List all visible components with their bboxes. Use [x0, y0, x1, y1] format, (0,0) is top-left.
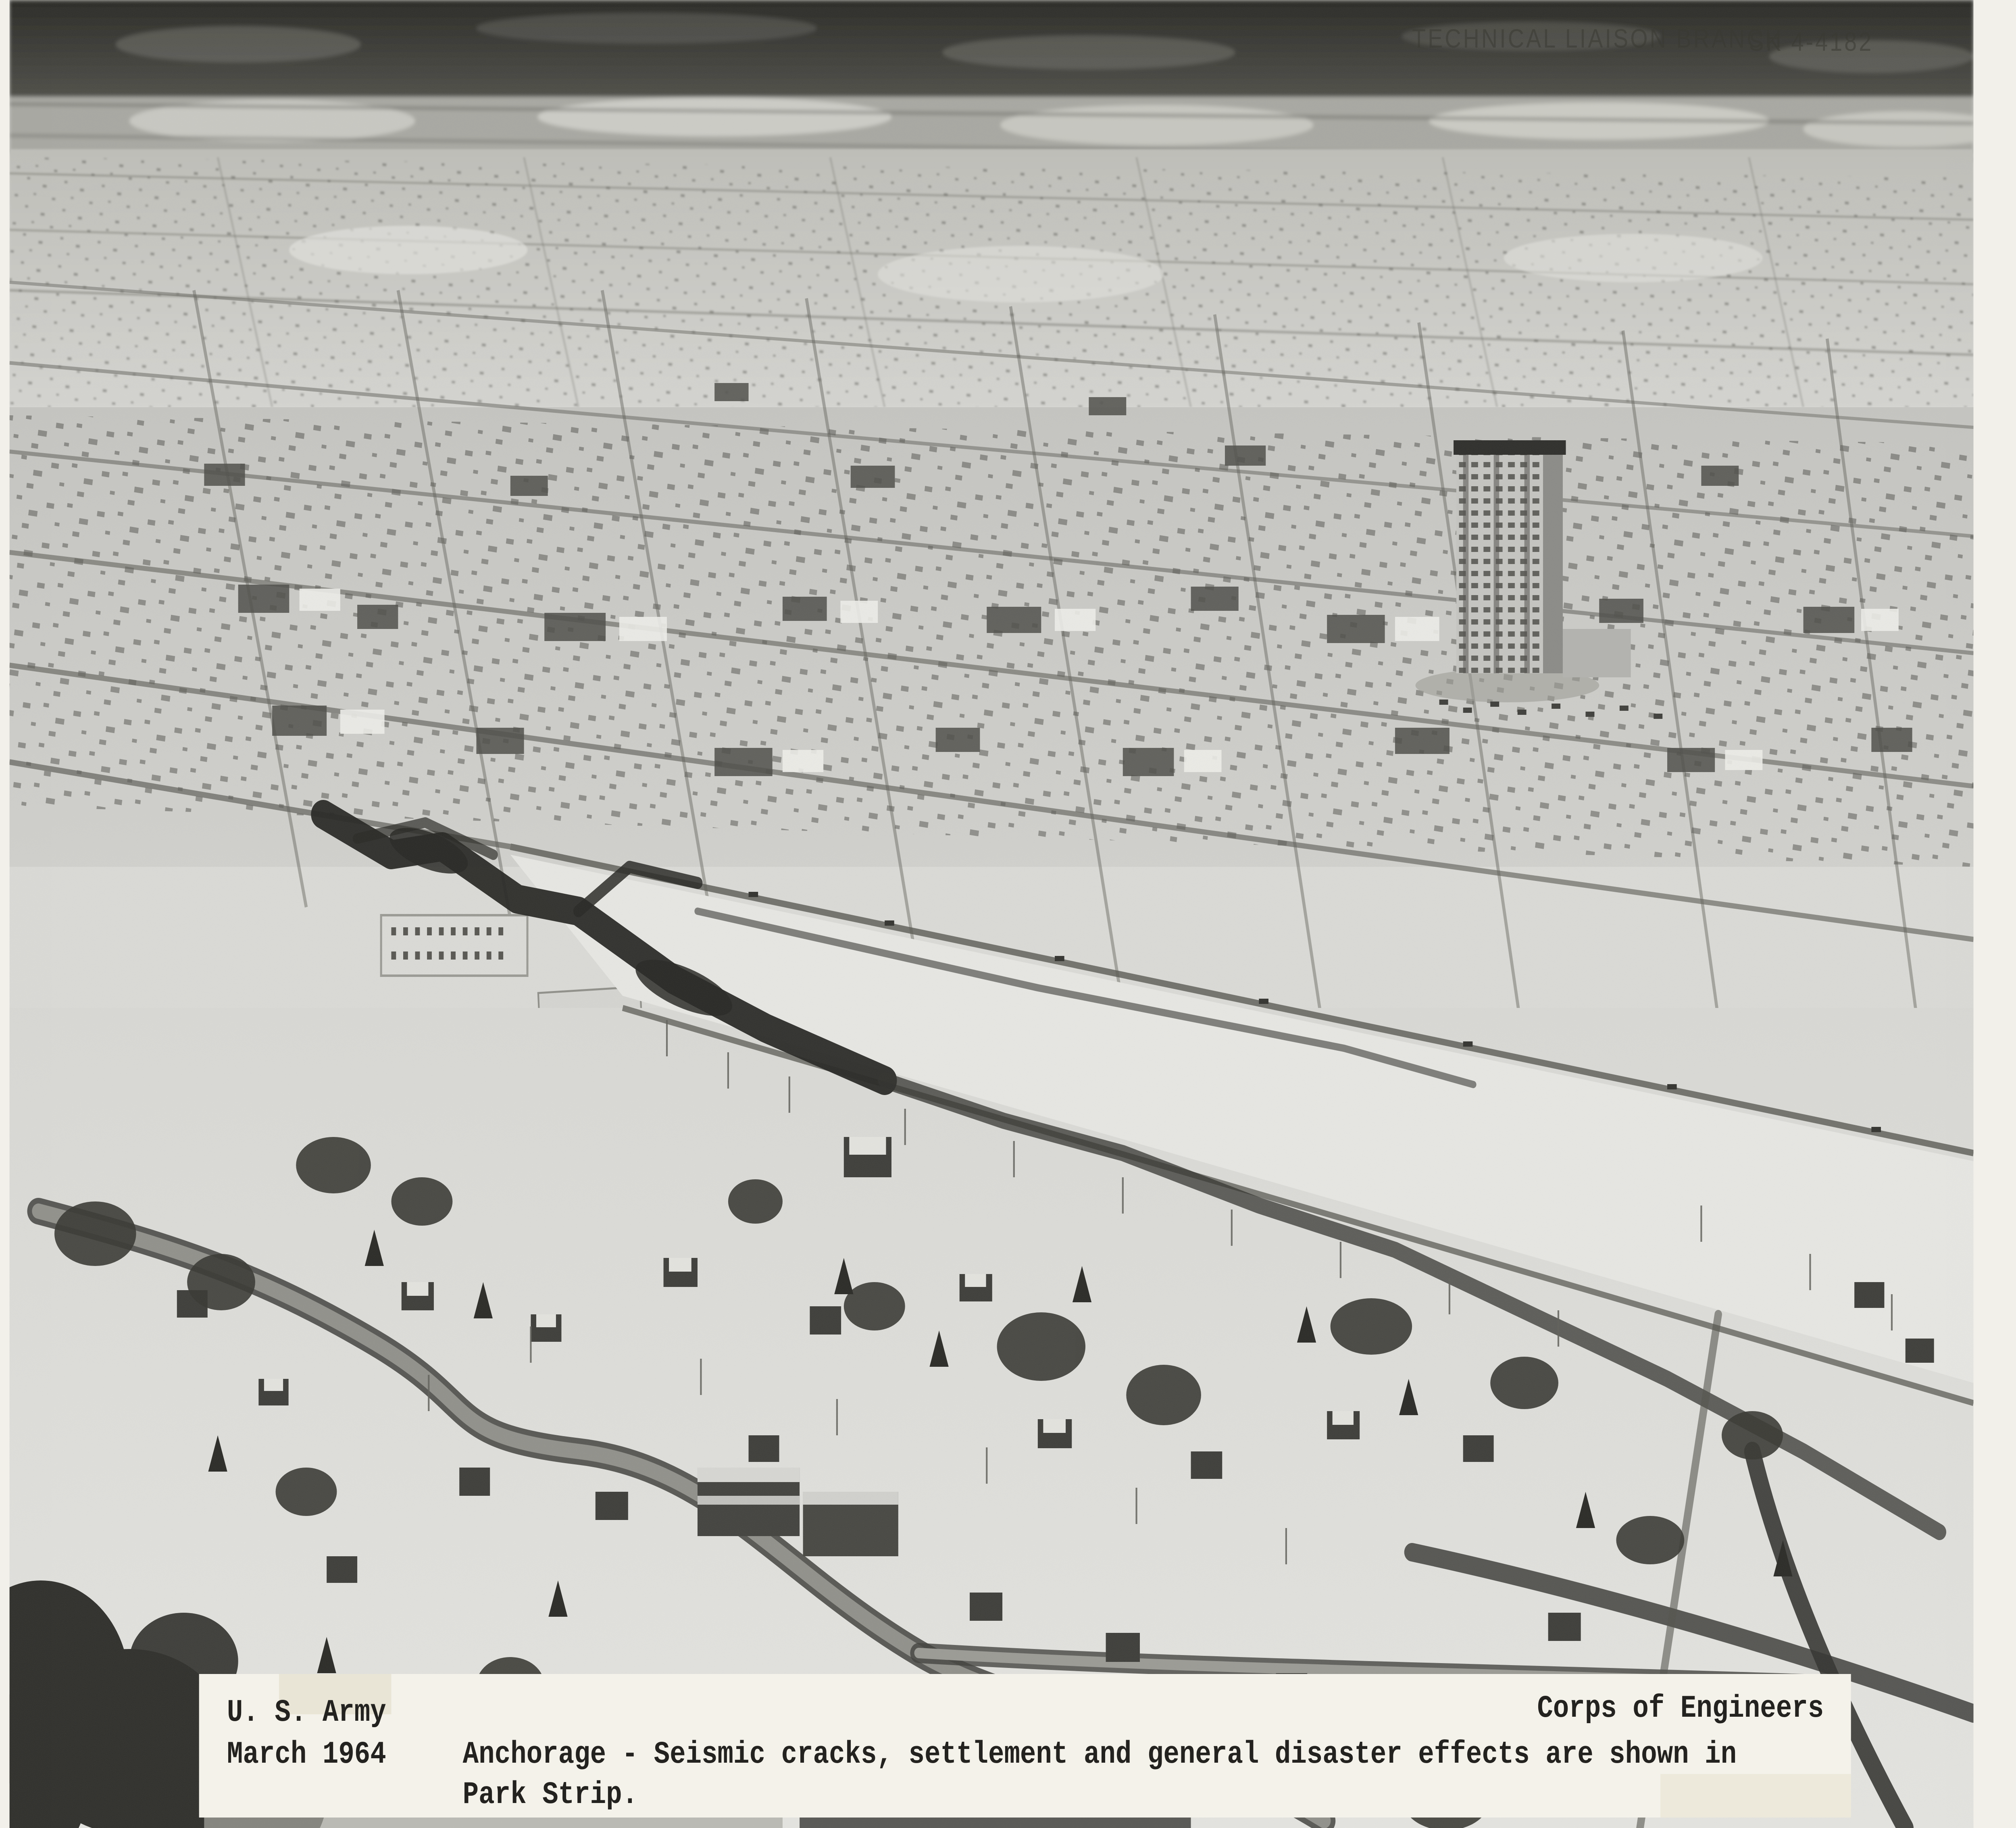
caption-description-line2: Park Strip. — [463, 1777, 638, 1813]
tape-mark-right — [1660, 1774, 1851, 1818]
caption-agency: U. S. Army — [227, 1695, 386, 1730]
stamp-agency-text: TECHNICAL LIAISON BRANCH — [1412, 24, 1783, 53]
film-grain — [10, 0, 1974, 1828]
caption-credit: Corps of Engineers — [1537, 1691, 1824, 1726]
photo-bottom-dark-strip — [800, 1816, 1191, 1828]
caption-description-line1: Anchorage - Seismic cracks, settlement a… — [463, 1736, 1737, 1772]
stamp: TECHNICAL LIAISON BRANCH SK 4-4182 — [1412, 24, 1873, 56]
caption-label: U. S. Army March 1964 Corps of Engineers… — [199, 1674, 1851, 1818]
scanned-photo-page: TECHNICAL LIAISON BRANCH SK 4-4182 U. S.… — [0, 0, 2016, 1828]
stamp-number-text: SK 4-4182 — [1749, 27, 1874, 56]
photo-print: TECHNICAL LIAISON BRANCH SK 4-4182 — [0, 0, 2008, 1828]
caption-date: March 1964 — [227, 1736, 386, 1772]
aerial-photograph: TECHNICAL LIAISON BRANCH SK 4-4182 U. S.… — [0, 0, 2016, 1828]
